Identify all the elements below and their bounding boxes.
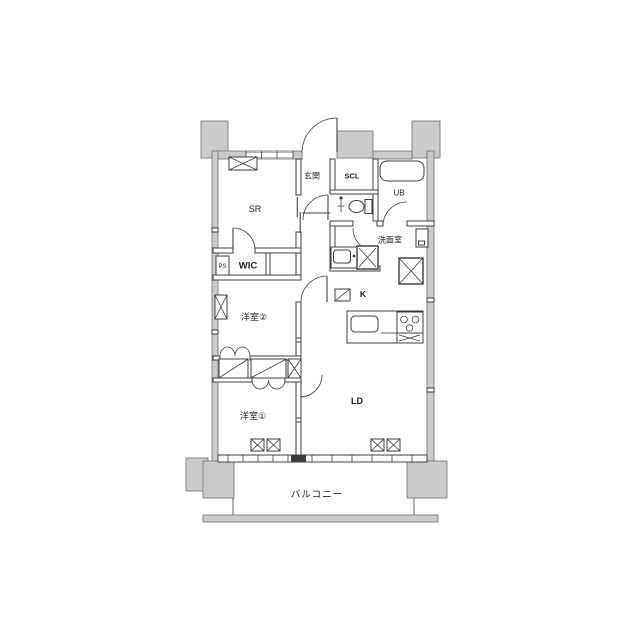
- sr-top-hatch: [229, 157, 257, 170]
- wall-pier-bottom: [291, 456, 306, 462]
- wall-right: [427, 151, 434, 467]
- label-service-room: SR: [249, 204, 262, 214]
- washbasin-icon: [331, 247, 358, 268]
- yoshitsu2-pillar-hatch: [215, 295, 227, 319]
- hall-to-ld-door: [301, 276, 327, 302]
- closet-end-door: [300, 375, 322, 397]
- label-kitchen: K: [360, 289, 367, 299]
- unit-bath-door: [383, 202, 407, 226]
- column-top-right: [412, 121, 440, 158]
- label-unit-bath: UB: [393, 189, 404, 198]
- column-bottom-left: [203, 461, 234, 498]
- wall-top-right: [373, 151, 412, 159]
- label-washroom: 洗面室: [378, 235, 402, 245]
- hatched-boxes: [215, 157, 423, 451]
- kitchen-counter: [347, 311, 423, 343]
- window-hatch-ld: [371, 439, 400, 451]
- floorplan-image: SR 玄関 SCL UB 洗面室 WIC PS 洋室② K LD 洋室① バルコ…: [0, 0, 640, 640]
- balcony-railing: [203, 515, 438, 522]
- wic-door: [233, 228, 255, 250]
- label-walk-in-closet: WIC: [239, 261, 258, 272]
- entrance-door: [302, 118, 337, 153]
- label-living-dining: LD: [351, 396, 363, 406]
- hall-corner-box: [335, 289, 350, 301]
- closet-panels: [219, 359, 301, 378]
- washing-machine-pan: [357, 246, 378, 269]
- label-entrance: 玄関: [304, 171, 320, 181]
- label-balcony: バルコニー: [291, 490, 343, 501]
- toilet-icon: [338, 196, 373, 213]
- bathtub-icon: [380, 161, 424, 181]
- column-bottom-right: [407, 461, 447, 498]
- window-balcony-wall: [218, 455, 427, 462]
- stove-icon: [397, 312, 423, 333]
- label-pipe-space: PS: [218, 264, 226, 270]
- folding-door-yoshitsu1: [252, 380, 285, 389]
- window-hatch-yoshitsu1: [251, 439, 280, 451]
- label-shoe-closet: SCL: [345, 172, 360, 181]
- label-western-room-1: 洋室①: [240, 410, 266, 421]
- label-western-room-2: 洋室②: [241, 311, 267, 322]
- washroom-cabinet: [416, 229, 428, 247]
- kitchen-sink-icon: [351, 316, 378, 332]
- floorplan-svg: SR 玄関 SCL UB 洗面室 WIC PS 洋室② K LD 洋室① バルコ…: [0, 0, 640, 640]
- folding-door-yoshitsu2: [220, 347, 250, 356]
- toilet-door: [303, 195, 328, 220]
- entrance-porch-wall: [337, 131, 373, 158]
- refrigerator-space: [399, 258, 423, 284]
- sliding-door-sr: [297, 197, 300, 233]
